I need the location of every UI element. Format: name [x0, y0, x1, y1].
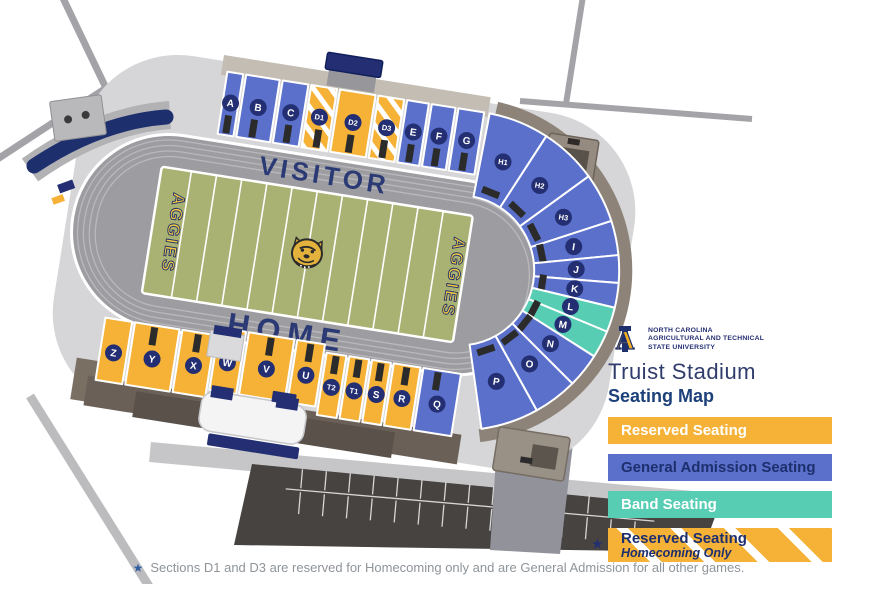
legend-sublabel: Homecoming Only [621, 547, 832, 561]
legend-label: General Admission Seating [621, 454, 832, 481]
section-label-D3: D3 [381, 123, 392, 133]
section-label-D1: D1 [314, 112, 325, 122]
legend-item-homecoming: ★Reserved SeatingHomecoming Only [608, 528, 832, 562]
section-label-T2: T2 [326, 382, 336, 392]
university-branding: A North Carolina Agricultural and Techni… [608, 322, 848, 354]
seating-map-canvas: AGGIES AGGIES VISITOR HOME [0, 0, 877, 584]
section-label-H1: H1 [498, 157, 509, 167]
footnote-star-icon: ★ [133, 561, 144, 575]
footnote-text: Sections D1 and D3 are reserved for Home… [150, 560, 744, 575]
legend: Reserved SeatingGeneral Admission Seatin… [608, 417, 832, 562]
university-name-line1: North Carolina [648, 327, 764, 335]
section-V[interactable]: V [239, 332, 294, 401]
legend-label: Reserved Seating [621, 417, 832, 444]
section-label-M: M [558, 319, 568, 331]
section-label-T1: T1 [349, 386, 359, 396]
section-label-D2: D2 [348, 117, 359, 127]
legend-item-band: Band Seating [608, 491, 832, 518]
stadium-name: Truist Stadium [608, 359, 848, 385]
section-label-H2: H2 [534, 181, 545, 191]
university-name-line2: Agricultural and Technical [648, 335, 764, 343]
svg-text:A: A [616, 326, 635, 354]
legend-star-icon: ★ [592, 538, 603, 550]
info-panel: A North Carolina Agricultural and Techni… [596, 322, 848, 572]
legend-label: Band Seating [621, 491, 832, 518]
map-title: Seating Map [608, 386, 848, 407]
legend-item-reserved: Reserved Seating [608, 417, 832, 444]
section-label-H3: H3 [558, 212, 569, 222]
university-name-line3: State University [648, 344, 764, 352]
university-logo: A [608, 322, 642, 354]
section-Y[interactable]: Y [125, 322, 179, 391]
legend-item-general: General Admission Seating [608, 454, 832, 481]
university-name: North Carolina Agricultural and Technica… [648, 322, 764, 352]
footnote: ★Sections D1 and D3 are reserved for Hom… [0, 560, 877, 575]
